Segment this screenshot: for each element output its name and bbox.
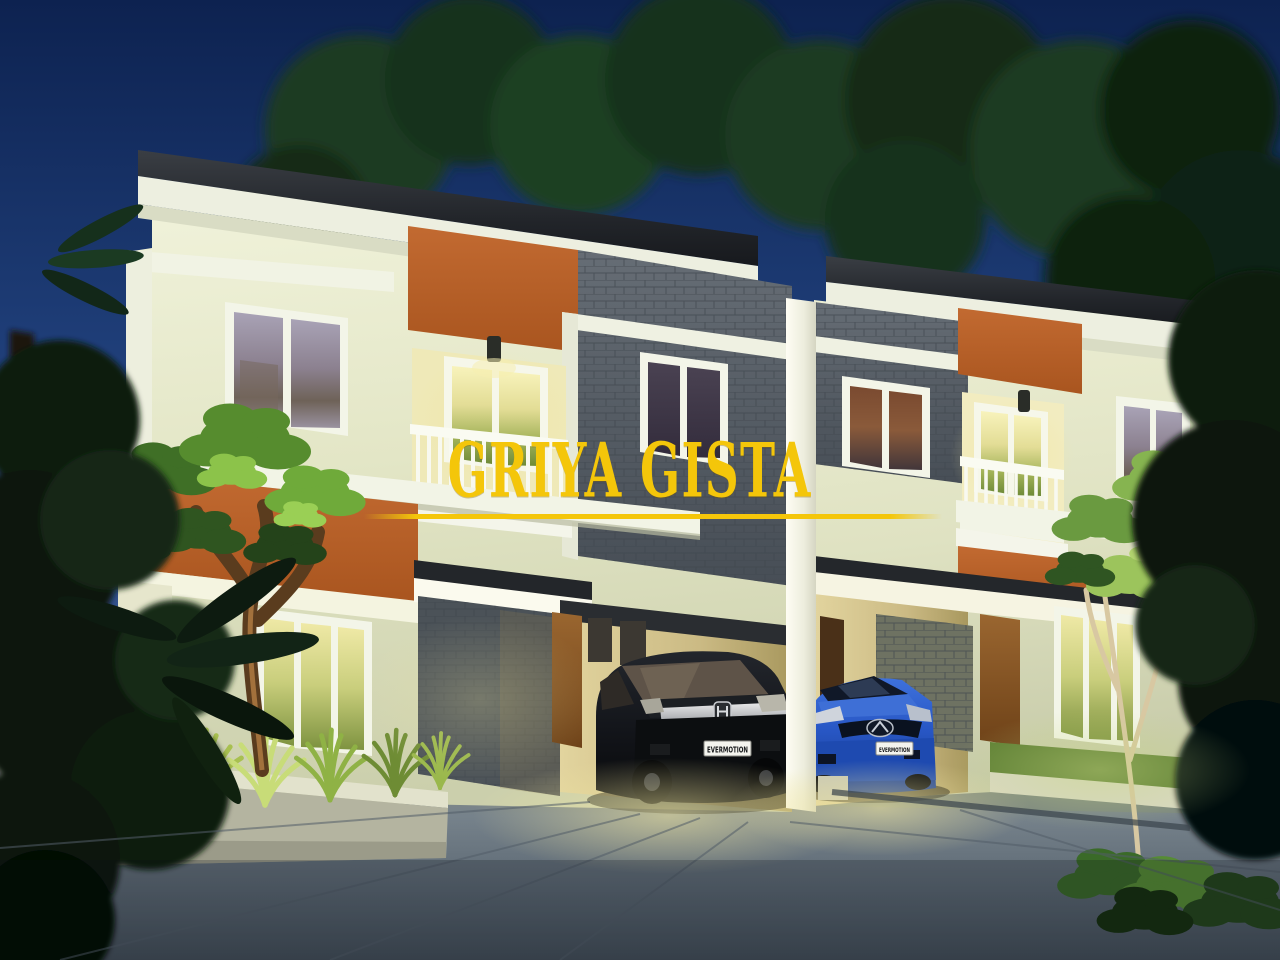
stone-window <box>640 352 728 466</box>
render-canvas: EVERMOTION EVERMOTION <box>0 0 1280 960</box>
suv-plate-text: EVERMOTION <box>707 746 748 755</box>
right-balcony <box>950 390 1074 564</box>
left-entry-sidelight <box>588 618 612 662</box>
suv-license-plate: EVERMOTION <box>704 741 751 756</box>
party-wall-pillar <box>786 298 816 812</box>
right-upper-window-left <box>842 376 930 478</box>
sedan-license-plate: EVERMOTION <box>876 742 913 755</box>
sedan-plate-text: EVERMOTION <box>879 746 910 754</box>
mazda-logo-icon <box>867 720 893 737</box>
right-downlight <box>1018 390 1030 412</box>
architectural-render-scene: EVERMOTION EVERMOTION <box>0 0 1280 960</box>
bottom-vignette <box>0 860 1280 960</box>
